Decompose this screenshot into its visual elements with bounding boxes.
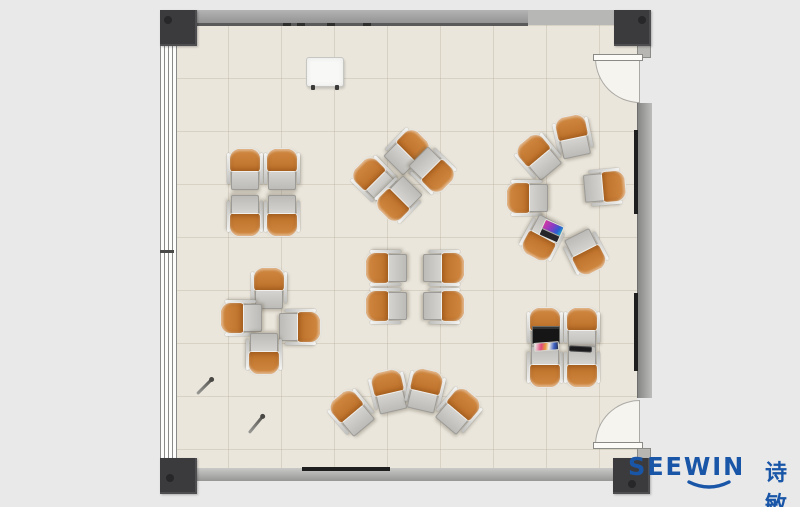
chair-seat (296, 311, 321, 343)
door-leaf-bottom-right (593, 442, 643, 449)
flipchart-foot (311, 85, 315, 90)
chair-seat (229, 212, 261, 237)
flipchart-board (306, 57, 344, 87)
desk-chair-unit (423, 250, 465, 286)
desk-top (388, 254, 407, 282)
desk-top (423, 292, 442, 320)
wall-mark (283, 23, 291, 26)
seewin-logo: SEEWIN 诗敏 (628, 452, 800, 502)
chair-seat (365, 290, 390, 322)
column-top-right (614, 10, 651, 46)
wall-top-right-segment (528, 10, 614, 25)
chair-seat (529, 363, 561, 388)
desk-top (250, 333, 278, 352)
wall-whiteboard (634, 293, 638, 371)
desk-top (268, 195, 296, 214)
logo-text-chinese: 诗敏 (765, 455, 800, 507)
desk-top (243, 304, 262, 332)
chair-seat (440, 290, 465, 322)
logo-text-latin: SEEWIN (628, 452, 745, 481)
wall-right (637, 103, 652, 398)
desk-top (268, 171, 296, 190)
desk-chair-unit (264, 148, 300, 190)
chair-seat (266, 148, 298, 173)
desk-chair-unit (264, 195, 300, 237)
desk-chair-unit (583, 167, 628, 207)
column-anchor-dot (166, 474, 174, 482)
desk-chair-unit (246, 333, 282, 375)
desk-chair-unit (227, 195, 263, 237)
wall-mark (327, 23, 335, 26)
desk-top (583, 173, 604, 203)
chair-seat (229, 148, 261, 173)
desk-chair-unit (423, 288, 465, 324)
wall-mark (297, 23, 305, 26)
desk-chair-unit (506, 180, 548, 216)
desk-chair-unit (365, 250, 407, 286)
desk-chair-unit (220, 300, 262, 336)
column-anchor-dot (638, 16, 646, 24)
desk-top (231, 171, 259, 190)
door-leaf-top-right (593, 54, 643, 61)
floor-plan-canvas: SEEWIN 诗敏 (0, 0, 800, 507)
chair-seat (440, 252, 465, 284)
column-bottom-left (160, 458, 197, 494)
desk-top (423, 254, 442, 282)
chair-seat (220, 302, 245, 334)
flipchart-foot (335, 85, 339, 90)
desk-chair-unit (365, 288, 407, 324)
chair-seat (266, 212, 298, 237)
tablet-device (569, 345, 592, 352)
chair-seat (248, 350, 280, 375)
chair-seat (506, 182, 531, 214)
desk-chair-unit (564, 307, 600, 349)
desk-top (388, 292, 407, 320)
desk-top (529, 184, 548, 212)
column-top-left (160, 10, 197, 46)
chair-seat (566, 307, 598, 332)
desk-top (231, 195, 259, 214)
chair-seat (253, 267, 285, 292)
logo-swoosh-icon (686, 480, 732, 492)
desk-chair-unit (564, 346, 600, 388)
wall-bottom (197, 468, 613, 481)
wall-mark (363, 23, 371, 26)
chair-seat (365, 252, 390, 284)
wall-whiteboard (634, 130, 638, 214)
colorful-papers (534, 341, 560, 352)
window-mullion-joint (160, 250, 174, 253)
chair-seat (566, 363, 598, 388)
desk-chair-unit (227, 148, 263, 190)
wall-whiteboard (302, 467, 390, 471)
desk-chair-unit (279, 309, 321, 345)
desk-chair-unit (527, 346, 563, 388)
column-anchor-dot (164, 16, 172, 24)
